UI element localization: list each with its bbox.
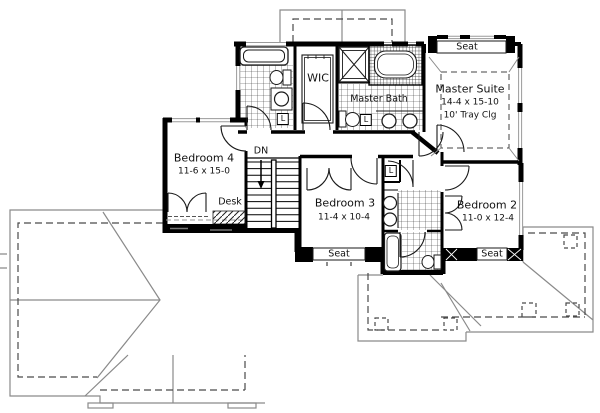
sink-icon	[384, 197, 397, 210]
toilet-icon	[339, 111, 360, 127]
bedroom3-seat-label: Seat	[328, 249, 349, 259]
bedroom3-label: Bedroom 3	[315, 198, 375, 209]
roof-center	[358, 273, 481, 341]
floor-plan: WIC Master Bath Master Suite 14-4 x 15-1…	[0, 0, 600, 413]
master-tub	[369, 45, 422, 85]
linen-closet-label: L	[277, 113, 289, 125]
bedroom2-seat-label: Seat	[481, 249, 502, 259]
wic-label: WIC	[307, 73, 329, 84]
sink-icon	[382, 114, 396, 128]
desk-label: Desk	[218, 197, 242, 207]
bedroom2-dims: 11-0 x 12-4	[462, 215, 514, 224]
dormer-roof	[280, 10, 405, 42]
linen-closet-label: L	[360, 114, 372, 126]
master-suite-ceiling: 10' Tray Clg	[444, 112, 497, 121]
bedroom4-dims: 11-6 x 15-0	[178, 168, 230, 177]
roof-left	[0, 210, 265, 408]
bedroom2-label: Bedroom 2	[457, 200, 517, 211]
sink-icon	[384, 213, 397, 226]
master-seat-label: Seat	[456, 42, 477, 52]
master-suite-label: Master Suite	[435, 84, 504, 95]
master-suite-dims: 14-4 x 15-10	[441, 99, 499, 108]
sink-icon	[403, 114, 417, 128]
bedroom4-label: Bedroom 4	[174, 153, 234, 164]
bedroom3-dims: 11-4 x 10-4	[318, 214, 370, 223]
desk-icon	[213, 211, 245, 224]
stairs-dn-label: DN	[254, 146, 268, 156]
bath2-tile	[398, 190, 441, 230]
master-bath-label: Master Bath	[350, 94, 408, 104]
toilet-icon	[270, 70, 291, 85]
toilet-icon	[422, 255, 441, 269]
linen-closet-label: L	[385, 165, 397, 177]
sink-icon	[271, 88, 292, 110]
bathtub-icon	[375, 51, 417, 78]
